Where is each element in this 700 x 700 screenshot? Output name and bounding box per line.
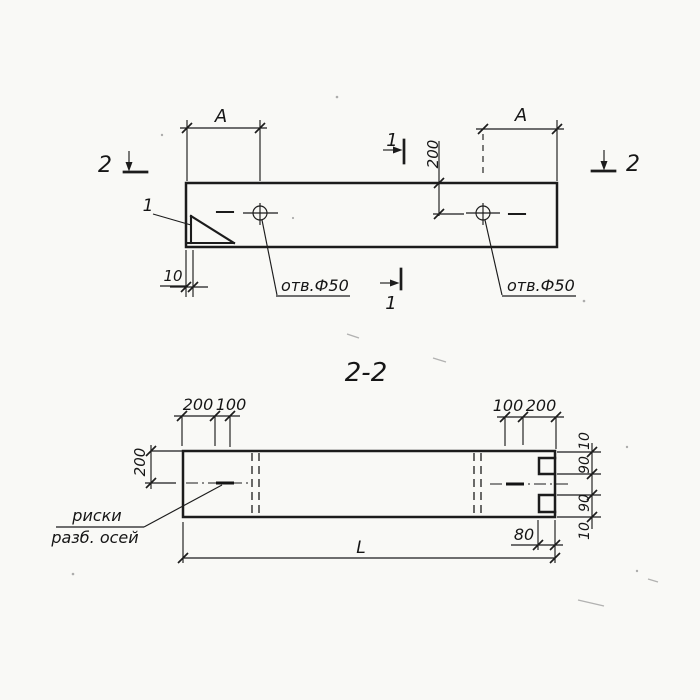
dim-200-label: 200: [424, 140, 442, 169]
section-view: 2-2 2: [50, 358, 601, 563]
section-end-notches: [539, 458, 555, 512]
section-2-left-label: 2: [98, 153, 112, 178]
section-dim-top-left: 200 100: [174, 395, 246, 447]
dim-height-200: 200: [131, 448, 149, 477]
plan-hole-callout-right: отв.Ф50: [485, 220, 576, 296]
plan-beam-outline: [186, 183, 557, 247]
section-hidden-lines: [252, 453, 481, 515]
dim-length-label: L: [356, 538, 365, 558]
plan-dim-200: 200: [424, 140, 464, 219]
plan-dim-a-right: A: [476, 105, 564, 181]
section-title: 2-2: [345, 358, 387, 388]
section-1-bottom-label: 1: [385, 293, 396, 314]
dim-a-right-label: A: [514, 105, 527, 126]
dim-right-90-top: 90: [577, 456, 593, 474]
section-dim-length: L: [178, 520, 560, 563]
section-axis-marks: [186, 483, 572, 484]
plan-hole-callout-left: отв.Ф50: [262, 220, 350, 296]
section-dim-top-right: 100 200: [493, 396, 564, 449]
section-dim-right-stack: 10 90 90 10: [557, 432, 601, 540]
plan-dim-a-left: A: [180, 106, 267, 181]
section-marker-1-top: 1: [383, 130, 404, 163]
dim-tl-200: 200: [183, 395, 214, 414]
section-marker-2-right: 2: [592, 150, 640, 177]
dim-80-label: 80: [514, 525, 534, 544]
scan-specks: [72, 96, 658, 606]
section-marker-1-bottom: 1: [380, 269, 401, 314]
dim-right-10-bottom: 10: [577, 522, 593, 540]
dim-tl-100: 100: [216, 395, 247, 414]
plan-detail-callout: 1: [143, 196, 191, 225]
detail-callout-label: 1: [143, 196, 154, 216]
technical-drawing: A A 200 10: [0, 0, 700, 700]
plan-view: A A 200 10: [98, 105, 640, 314]
dim-right-90-bottom: 90: [577, 494, 593, 512]
hole-label-right: отв.Ф50: [507, 276, 575, 295]
dim-a-left-label: A: [214, 106, 227, 127]
dim-tr-200: 200: [526, 396, 557, 415]
axes-note-line2: разб. осей: [50, 528, 138, 547]
section-1-top-label: 1: [386, 130, 397, 151]
section-marker-2-left: 2: [98, 151, 147, 178]
dim-right-10-top: 10: [577, 432, 593, 450]
plan-dim-10: 10: [160, 250, 208, 297]
hole-label-left: отв.Ф50: [281, 276, 349, 295]
dim-tr-100: 100: [493, 396, 524, 415]
dim-10-label: 10: [163, 267, 182, 285]
axes-note-line1: риски: [71, 506, 121, 525]
plan-detail-triangle: [187, 216, 234, 243]
drawing-sheet: A A 200 10: [0, 0, 700, 700]
section-2-right-label: 2: [626, 152, 640, 177]
plan-hole-left: [217, 203, 278, 225]
section-dim-height: 200: [131, 445, 183, 489]
plan-hole-right: [466, 203, 525, 225]
